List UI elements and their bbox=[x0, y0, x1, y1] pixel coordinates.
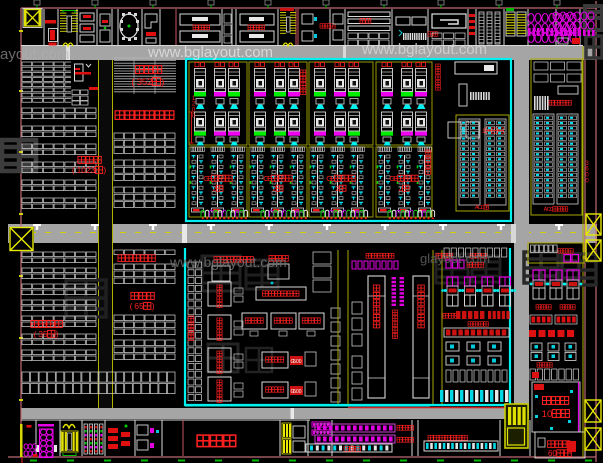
svg-text:C: C bbox=[481, 205, 485, 211]
svg-text:0: 0 bbox=[547, 409, 552, 420]
svg-text:C: C bbox=[550, 207, 554, 213]
svg-text:2: 2 bbox=[398, 184, 402, 193]
svg-text:): ) bbox=[103, 165, 106, 175]
svg-text:www.bglayout.com: www.bglayout.com bbox=[147, 44, 273, 61]
svg-text:): ) bbox=[152, 301, 155, 311]
svg-text:2: 2 bbox=[272, 184, 276, 193]
svg-text:(: ( bbox=[72, 165, 75, 175]
svg-text:): ) bbox=[56, 329, 59, 339]
svg-text:0: 0 bbox=[299, 389, 302, 395]
svg-text:2: 2 bbox=[147, 77, 152, 88]
svg-text:ayout.com: ayout.com bbox=[0, 46, 69, 63]
svg-text:(: ( bbox=[34, 329, 37, 339]
svg-text:): ) bbox=[161, 77, 164, 88]
svg-text:www.bglayout.com: www.bglayout.com bbox=[361, 41, 487, 58]
svg-text:www.bglayout.com: www.bglayout.com bbox=[169, 254, 287, 270]
svg-text:glayout.com: glayout.com bbox=[420, 251, 490, 266]
svg-text:2: 2 bbox=[335, 184, 339, 193]
svg-text:(: ( bbox=[130, 301, 133, 311]
svg-text:2: 2 bbox=[212, 184, 216, 193]
svg-text:0: 0 bbox=[299, 359, 302, 365]
